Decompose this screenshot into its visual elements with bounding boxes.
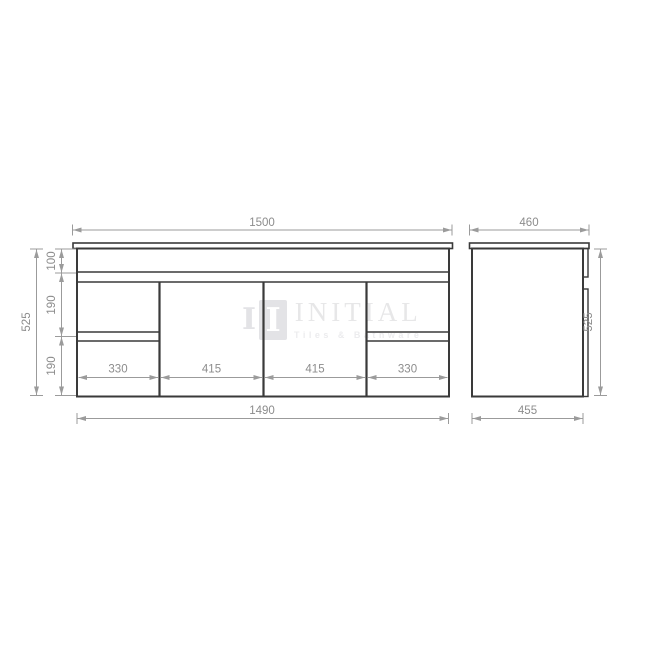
side-cabinet-body	[472, 249, 583, 397]
dim-1490-label: 1490	[249, 405, 275, 417]
side-view	[470, 243, 590, 397]
dim-415-right-label: 415	[305, 364, 324, 376]
dim-330-left-label: 330	[108, 364, 127, 376]
dim-190-bottom-label: 190	[46, 356, 58, 375]
dim-330-right-label: 330	[398, 364, 417, 376]
dim-100-label: 100	[46, 251, 58, 270]
dim-1500-label: 1500	[249, 217, 275, 229]
dim-455-label: 455	[518, 405, 537, 417]
vanity-dimension-diagram: I I INITIAL Tiles & Bathware	[0, 0, 645, 645]
dim-415-left-label: 415	[202, 364, 221, 376]
dim-190-middle-label: 190	[46, 295, 58, 314]
dim-460-label: 460	[519, 217, 538, 229]
technical-drawing: 1500 1490 330 415 415 330 525	[0, 0, 645, 645]
dim-525-left-label: 525	[21, 312, 33, 331]
dim-525-right-label: 525	[583, 312, 595, 331]
front-view	[73, 243, 453, 397]
